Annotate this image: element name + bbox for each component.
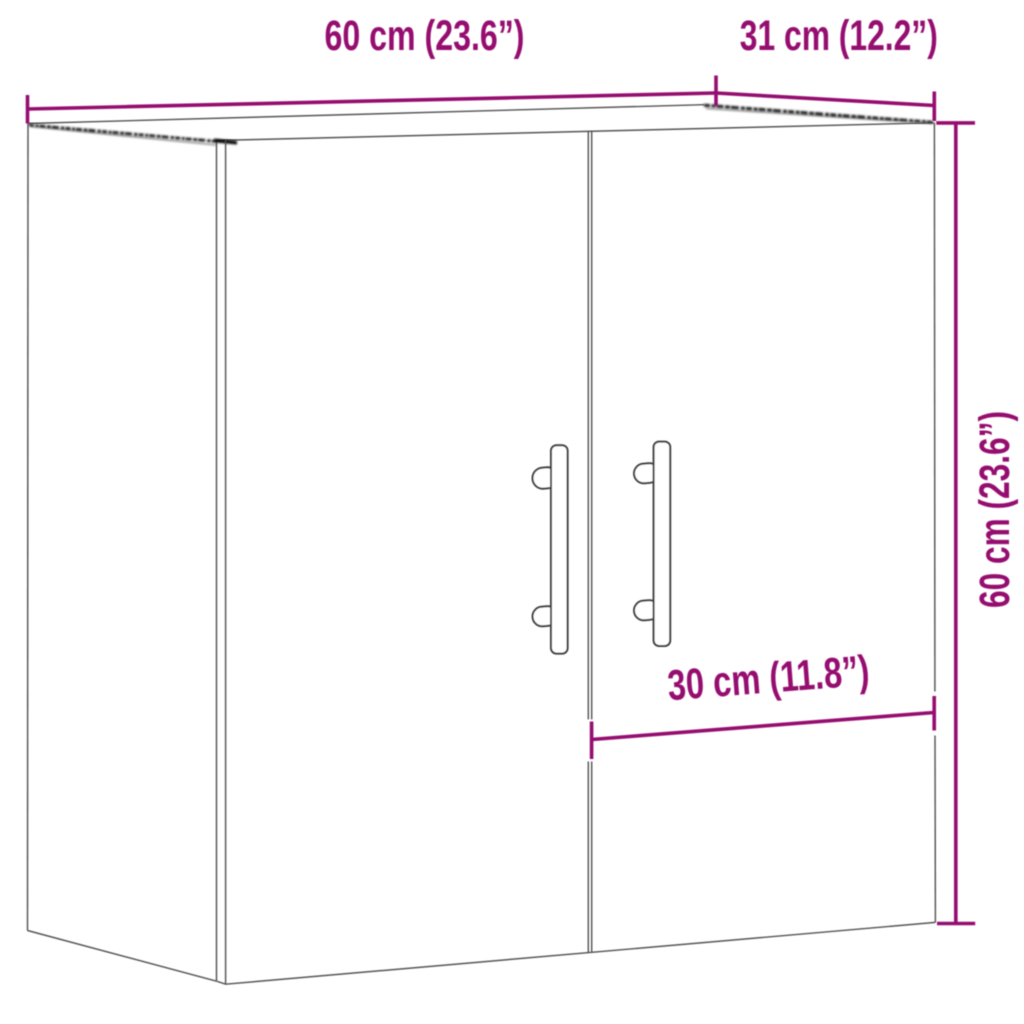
svg-text:60 cm (23.6”): 60 cm (23.6”) bbox=[971, 411, 1019, 608]
svg-text:30 cm (11.8”): 30 cm (11.8”) bbox=[666, 647, 871, 710]
svg-text:31 cm (12.2”): 31 cm (12.2”) bbox=[740, 12, 938, 60]
svg-text:60 cm (23.6”): 60 cm (23.6”) bbox=[325, 12, 525, 60]
